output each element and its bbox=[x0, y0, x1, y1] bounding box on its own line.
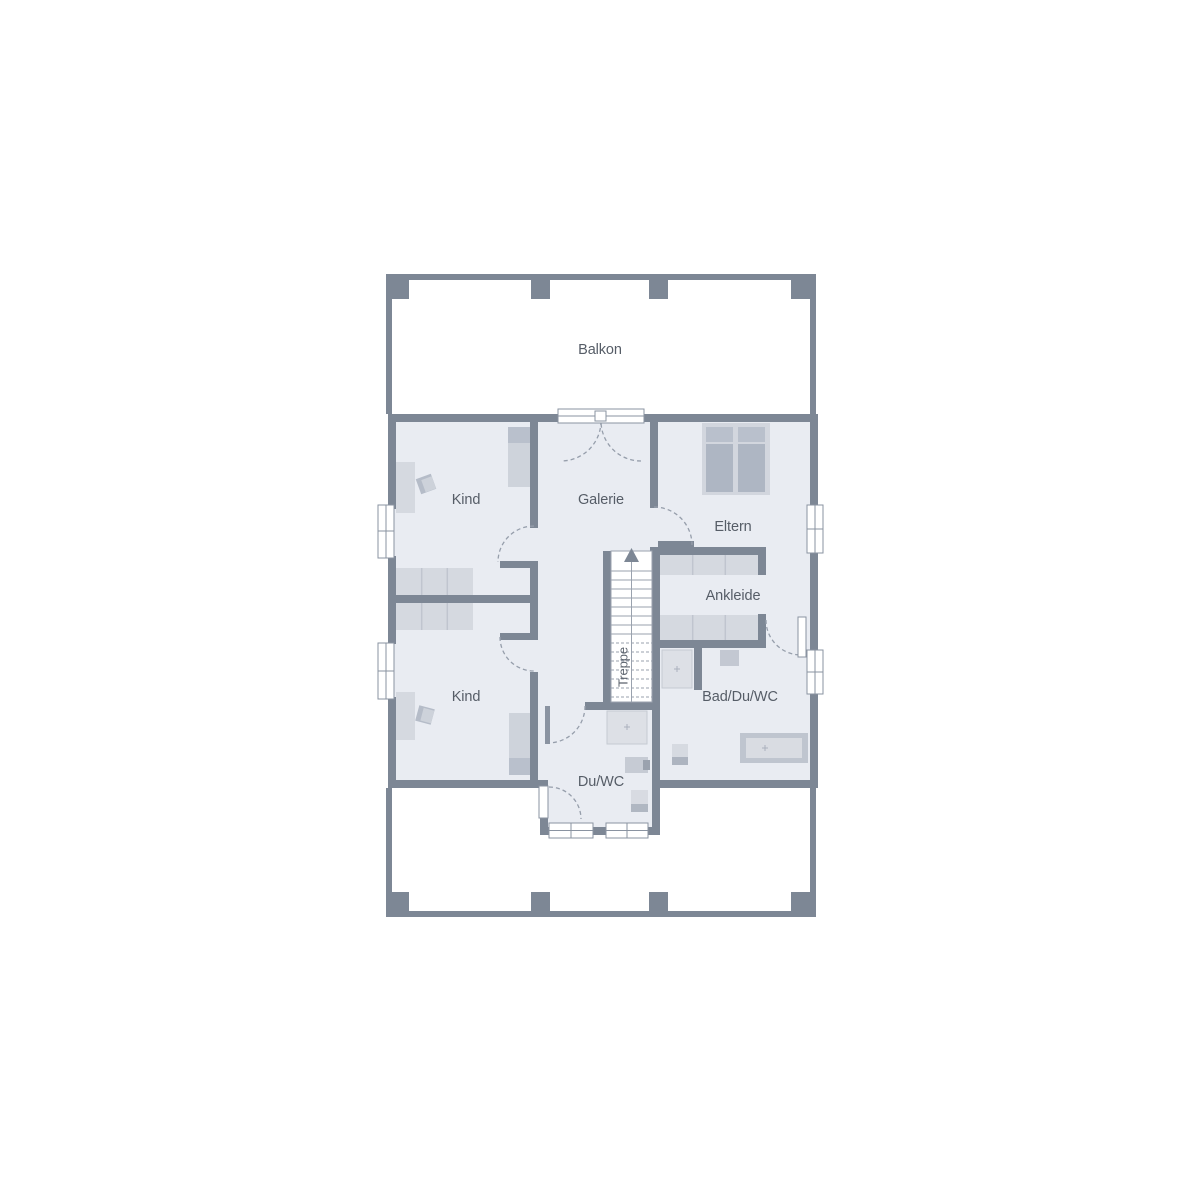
wall bbox=[650, 547, 766, 555]
wall bbox=[388, 780, 540, 788]
wall bbox=[694, 648, 702, 690]
wall bbox=[644, 414, 818, 422]
toilet bbox=[672, 744, 688, 757]
pillar bbox=[531, 280, 550, 299]
room-label-balkon: Balkon bbox=[578, 342, 622, 358]
bathtub-basin bbox=[746, 738, 802, 758]
bed-mattress bbox=[738, 444, 765, 492]
window bbox=[606, 823, 648, 838]
wall bbox=[660, 780, 818, 788]
floor-plan-canvas: Balkon Kind Galerie Eltern Ankleide Bad/… bbox=[0, 0, 1200, 1200]
desk bbox=[396, 462, 415, 513]
room-label-galerie: Galerie bbox=[578, 492, 624, 508]
sink-faucet bbox=[643, 760, 650, 770]
wall bbox=[388, 556, 396, 644]
room-label-treppe: Treppe bbox=[616, 647, 631, 687]
window bbox=[378, 505, 394, 558]
wall bbox=[388, 414, 396, 509]
door-leaf bbox=[500, 633, 538, 640]
wall bbox=[758, 614, 766, 640]
bed-pillow bbox=[706, 427, 733, 442]
door-leaf bbox=[545, 706, 550, 744]
wall bbox=[810, 414, 818, 506]
balcony-top-edge bbox=[386, 274, 816, 280]
window bbox=[549, 823, 593, 838]
room-label-ankleide: Ankleide bbox=[706, 588, 761, 604]
wall bbox=[652, 547, 660, 780]
pillar bbox=[649, 280, 668, 299]
wall bbox=[585, 702, 660, 710]
pillar bbox=[390, 892, 409, 911]
wall bbox=[652, 640, 766, 648]
balcony-right-edge bbox=[810, 274, 816, 414]
room-label-du-wc: Du/WC bbox=[578, 774, 624, 790]
wall bbox=[388, 414, 558, 422]
sink bbox=[720, 650, 739, 666]
wardrobe bbox=[396, 568, 473, 595]
desk bbox=[396, 692, 415, 740]
window bbox=[378, 643, 394, 699]
balcony-door bbox=[558, 409, 644, 423]
toilet-tank bbox=[672, 757, 688, 765]
wall bbox=[530, 672, 538, 780]
door-leaf bbox=[658, 541, 694, 548]
wall bbox=[810, 692, 818, 788]
door-leaf bbox=[500, 561, 538, 568]
wall bbox=[758, 547, 766, 575]
room-label-bad-du-wc: Bad/Du/WC bbox=[702, 689, 778, 705]
balcony-door-leaf bbox=[539, 786, 548, 818]
wardrobe bbox=[660, 615, 758, 640]
wall bbox=[388, 697, 396, 788]
wall bbox=[650, 422, 658, 508]
pillar bbox=[531, 892, 550, 911]
balcony-bottom-edge bbox=[386, 911, 816, 917]
wall bbox=[603, 551, 611, 710]
pillar bbox=[390, 280, 409, 299]
bed-mattress bbox=[706, 444, 733, 492]
window bbox=[807, 650, 823, 694]
room-label-kind-bottom: Kind bbox=[452, 689, 481, 705]
door-leaf bbox=[798, 617, 806, 657]
wall bbox=[530, 422, 538, 528]
door-post bbox=[595, 411, 606, 421]
wall bbox=[396, 595, 538, 603]
pillar bbox=[791, 892, 810, 911]
wall bbox=[810, 552, 818, 651]
window bbox=[807, 505, 823, 553]
wardrobe bbox=[396, 603, 473, 630]
pillar bbox=[791, 280, 810, 299]
bed-pillow bbox=[738, 427, 765, 442]
toilet-tank bbox=[631, 804, 648, 812]
floor-plan-drawing bbox=[0, 0, 1200, 1200]
balcony-right-edge bbox=[810, 788, 816, 917]
wardrobe bbox=[660, 555, 758, 575]
room-label-kind-top: Kind bbox=[452, 492, 481, 508]
wall bbox=[652, 780, 660, 835]
pillar bbox=[649, 892, 668, 911]
toilet bbox=[631, 790, 648, 804]
room-label-eltern: Eltern bbox=[714, 519, 751, 535]
